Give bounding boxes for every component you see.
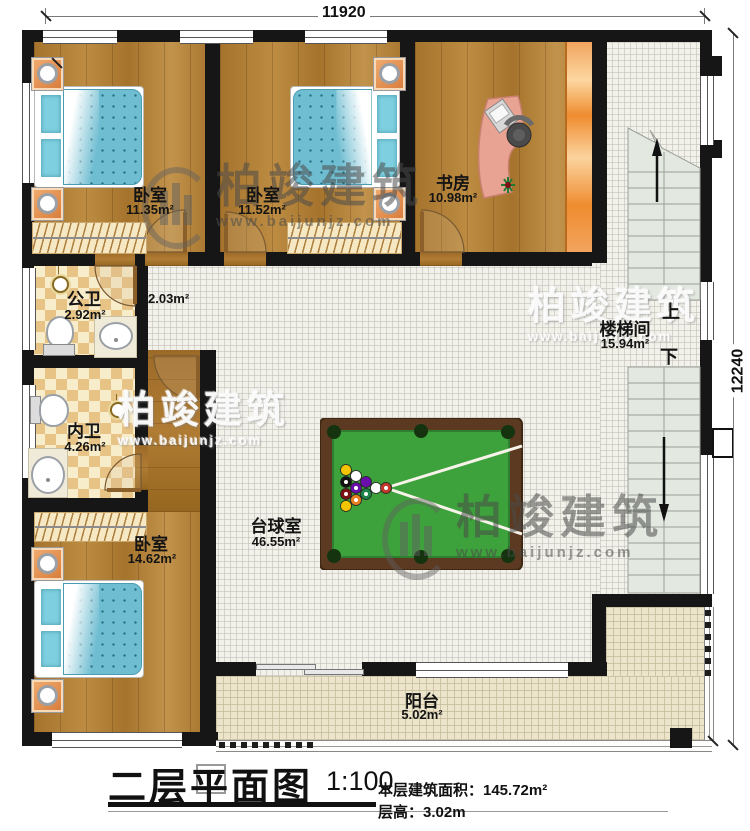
stairwell-area: 15.94m² [596, 336, 654, 351]
pillow [39, 93, 63, 135]
bedroom1-bed [34, 86, 144, 188]
watermark: 柏竣建筑 www.baijunjz.com [382, 494, 664, 561]
dimension-line-top [45, 16, 705, 17]
stairs-down-label: 下 [660, 343, 678, 369]
lamp-icon [37, 553, 58, 574]
logo-bar [424, 526, 432, 556]
lamp-icon [37, 63, 58, 84]
lamp-icon [37, 685, 58, 706]
dimension-top-label: 11920 [318, 4, 370, 22]
watermark: 柏竣建筑 www.baijunjz.com [118, 392, 290, 448]
pillow [39, 137, 63, 179]
sink-basin [31, 456, 65, 494]
nightstand [32, 188, 63, 220]
watermark-logo-icon [382, 498, 452, 580]
nightstand [32, 680, 63, 712]
nightstand [374, 58, 405, 90]
nightstand [32, 548, 63, 580]
balcony-area: 5.02m² [392, 707, 452, 722]
pillow [39, 629, 63, 669]
watermark-brand: 柏竣建筑 [118, 392, 290, 430]
watermark-url: www.baijunjz.com [456, 544, 664, 561]
billiard-room-area: 46.55m² [238, 534, 314, 549]
sink-basin [99, 322, 133, 350]
study-area: 10.98m² [412, 190, 494, 205]
blanket-fold [64, 584, 99, 674]
hallway-area: 2.03m² [148, 291, 210, 306]
floor-height-text: 层高：3.02m [378, 801, 466, 822]
bedroom3-area: 14.62m² [108, 551, 196, 566]
stairs-up-label: 上 [662, 298, 680, 324]
logo-bar [412, 514, 420, 556]
floor-plan: 柏竣建筑 www.baijunjz.com 柏竣建筑 www.baijunjz.… [0, 0, 750, 831]
bedroom1-wardrobe [32, 222, 147, 254]
pillow [39, 587, 63, 627]
logo-bar [400, 522, 408, 556]
toilet-tank [43, 344, 75, 356]
bedroom1-area: 11.35m² [95, 202, 205, 217]
dimension-right-label: 12240 [729, 345, 747, 398]
watermark-url: www.baijunjz.com [118, 433, 290, 448]
lamp-icon [379, 63, 400, 84]
lamp-icon [37, 193, 58, 214]
mattress [63, 583, 142, 675]
pillow [375, 93, 399, 135]
title-rule-thick [108, 802, 376, 807]
bedroom2-area: 11.52m² [212, 202, 312, 217]
mattress [63, 89, 142, 185]
public-bath-area: 2.92m² [50, 307, 120, 322]
watermark-brand: 柏竣建筑 [456, 494, 664, 540]
bedroom3-bed [34, 580, 144, 678]
floor-area-text: 本层建筑面积：145.72m² [378, 779, 547, 800]
blanket-fold [64, 90, 99, 184]
ensuite-bath-area: 4.26m² [50, 439, 120, 454]
